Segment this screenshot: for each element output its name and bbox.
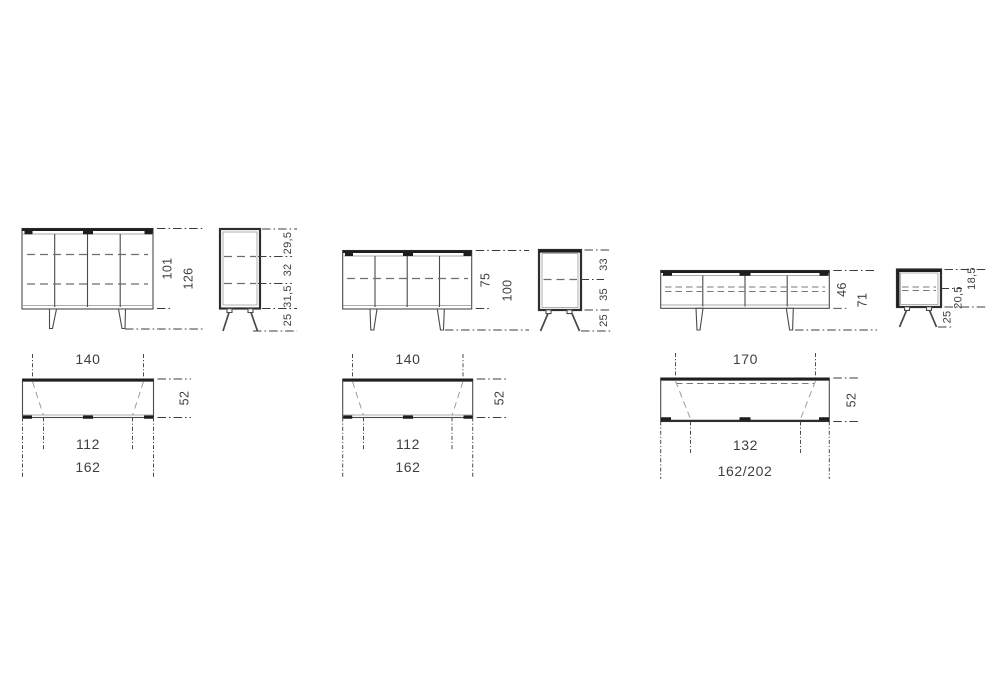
side-outline: [897, 270, 941, 308]
highboard-plan-view: 140 112 162 52: [23, 351, 192, 478]
side-inner-line: [223, 232, 257, 305]
dim-leg-height: 25: [282, 314, 294, 327]
plan-outline: [343, 379, 473, 418]
legs: [696, 308, 793, 330]
dim-top-width: 140: [395, 351, 420, 367]
dim-total-width: 162/202: [718, 463, 773, 479]
dim-section-top: 18,5: [966, 267, 978, 290]
dim-total-height: 100: [500, 279, 514, 301]
legs: [50, 309, 126, 329]
dim-section-top: 33: [598, 258, 610, 271]
side-inner-line: [901, 273, 939, 305]
legs: [370, 309, 444, 330]
dim-section-top: 29,5: [282, 232, 294, 255]
dim-top-width: 170: [733, 351, 758, 367]
dim-leg-span: 112: [396, 436, 420, 452]
dim-section-bottom: 20,5: [952, 286, 964, 309]
dim-leg-height: 25: [598, 314, 610, 327]
splayed-legs: [223, 313, 258, 332]
handle-marks: [345, 253, 472, 256]
dim-depth: 52: [844, 393, 858, 408]
side-top-left-edges: [897, 270, 941, 308]
plan-outline: [23, 379, 154, 418]
dim-leg-span: 132: [733, 437, 758, 453]
dim-leg-span: 112: [76, 436, 100, 452]
side-inner-line: [542, 254, 578, 308]
shelf-dashed-lines: [224, 257, 256, 284]
dim-section-middle: 32: [282, 264, 294, 277]
extension-lines: [445, 251, 529, 331]
dim-body-height: 75: [478, 273, 492, 288]
tv-bench-front-view: 46 71: [661, 271, 877, 331]
sideboard-front-view: 75 100: [343, 251, 529, 331]
dim-total-height: 71: [855, 293, 869, 308]
dimension-marks: [661, 353, 830, 479]
dim-total-width: 162: [395, 459, 420, 475]
dim-body-height: 46: [835, 282, 849, 297]
technical-drawing-page: 101 126 29,5 32 31,5 25 140 112 162 52: [0, 0, 1000, 700]
dim-total-width: 162: [75, 459, 100, 475]
highboard-side-view: 29,5 32 31,5 25: [220, 229, 297, 331]
side-outline: [220, 229, 260, 309]
dim-section-bottom: 31,5: [282, 285, 294, 308]
sideboard-side-view: 33 35 25: [539, 250, 612, 331]
dim-depth: 52: [492, 391, 506, 406]
door-divisions: [375, 256, 440, 307]
splayed-legs: [900, 311, 937, 328]
sideboard-plan-view: 140 112 162 52: [343, 351, 507, 478]
door-divisions: [55, 234, 121, 307]
plan-outline: [661, 378, 830, 422]
leg-splay-diagonals: [353, 382, 464, 416]
shelf-dashed-lines: [902, 287, 936, 291]
tv-bench-plan-view: 170 132 162/202 52: [661, 351, 860, 479]
leg-splay-diagonals: [676, 381, 816, 419]
splayed-legs: [541, 314, 580, 332]
dim-total-height: 126: [181, 267, 195, 289]
leg-splay-diagonals: [33, 382, 144, 416]
dim-section-bottom: 35: [598, 288, 610, 301]
dim-leg-height: 25: [941, 311, 953, 324]
highboard-front-view: 101 126: [22, 229, 204, 330]
dim-top-width: 140: [75, 351, 100, 367]
tv-bench-side-view: 18,5 20,5 25: [897, 267, 987, 327]
dim-depth: 52: [177, 391, 191, 406]
dimension-drawing-canvas: 101 126 29,5 32 31,5 25 140 112 162 52: [0, 0, 1000, 700]
dim-body-height: 101: [160, 257, 174, 279]
